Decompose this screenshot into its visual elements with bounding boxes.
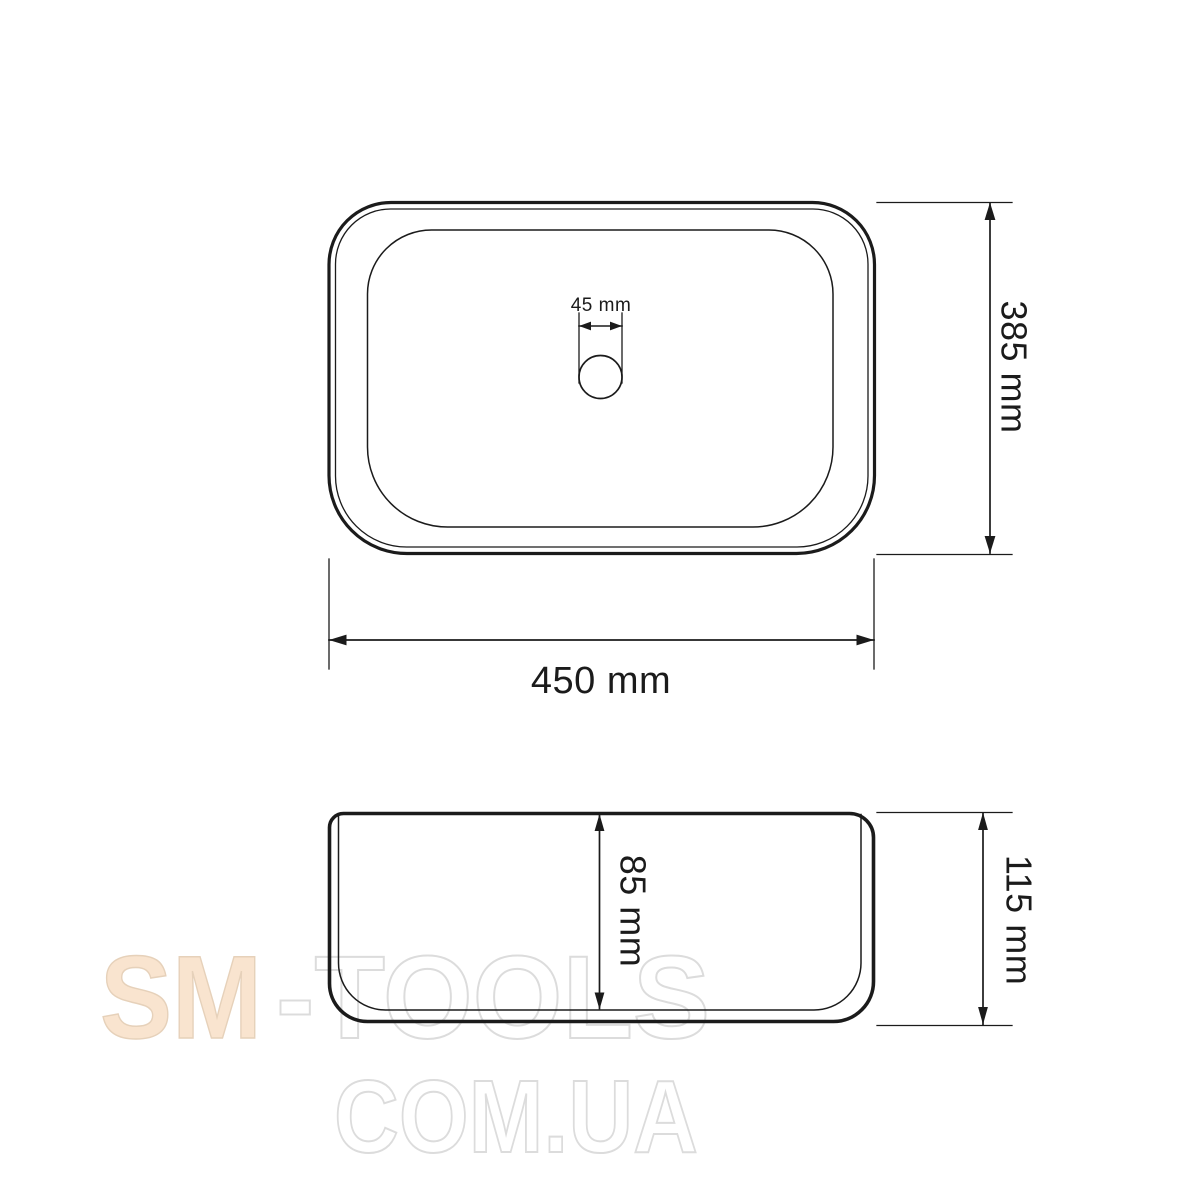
total-height-dimension-label: 115 mm xyxy=(998,855,1039,985)
arrowhead-up xyxy=(595,814,605,831)
arrowhead-up xyxy=(985,203,996,221)
top-view-outer-rim xyxy=(329,203,875,554)
dimension-drain xyxy=(579,313,622,383)
arrowhead-left xyxy=(329,635,347,646)
drain-hole xyxy=(579,356,622,399)
dimension-annotations: 45 mm 385 mm 450 mm 85 mm 115 mm xyxy=(329,203,1039,1025)
inner-height-dimension-label: 85 mm xyxy=(612,855,653,968)
arrowhead-left xyxy=(579,322,591,331)
watermark-brand-primary: SM xyxy=(100,932,262,1064)
watermark: SM -TOOLS COM.UA xyxy=(100,932,710,1174)
arrowhead-right xyxy=(857,635,875,646)
dimension-total-height xyxy=(877,813,1012,1026)
dimension-width xyxy=(329,559,874,669)
watermark-domain: COM.UA xyxy=(334,1059,698,1174)
top-view xyxy=(329,203,875,554)
linework xyxy=(329,203,1012,1026)
drawing-sheet: SM -TOOLS COM.UA xyxy=(0,0,1200,1200)
top-view-rim-inner-line xyxy=(336,209,869,547)
width-dimension-label: 450 mm xyxy=(531,660,671,702)
depth-dimension-label: 385 mm xyxy=(993,300,1034,433)
drain-dimension-label: 45 mm xyxy=(571,295,632,316)
arrowhead-down xyxy=(978,1007,988,1025)
arrowhead-up xyxy=(978,813,988,831)
dimension-depth xyxy=(877,203,1012,555)
sink-technical-drawing: SM -TOOLS COM.UA xyxy=(0,0,1200,1200)
arrowhead-down xyxy=(985,536,996,554)
arrowhead-right xyxy=(610,322,622,331)
top-view-basin-edge xyxy=(368,230,834,527)
